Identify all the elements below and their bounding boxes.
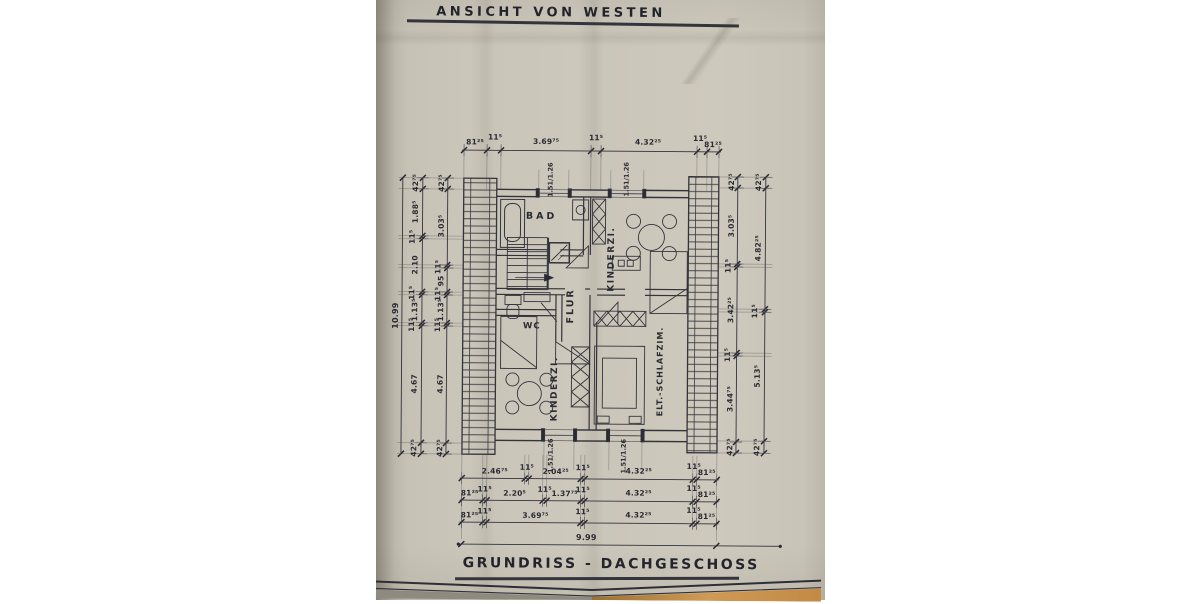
room-label-eltern-schlafzimmer: ELT.-SCHLAFZIM. xyxy=(656,327,665,417)
dim-label: 3.44⁷⁵ xyxy=(726,386,734,412)
overall-height-dim: 10.99 xyxy=(392,302,400,328)
wardrobe-top xyxy=(592,199,605,244)
dim-label: 3.69⁷⁵ xyxy=(533,138,559,146)
dim-label: 81²⁵ xyxy=(466,138,484,146)
dim-label: 42⁷⁵ xyxy=(410,439,418,457)
dim-label: 81²⁵ xyxy=(461,489,479,497)
dim-label: 4.67 xyxy=(437,374,445,393)
dim-label: 3.03⁵ xyxy=(438,215,446,238)
dim-label: 42⁷⁵ xyxy=(728,173,736,191)
left-gable-wall xyxy=(462,178,497,454)
view-title-underline xyxy=(407,19,739,27)
window-dim: 1.51/1.26 xyxy=(623,162,630,196)
dim-label: 11⁵ xyxy=(724,259,732,273)
dim-label: 2.10 xyxy=(411,255,419,274)
room-label-kinderzimmer-top: KINDERZI. xyxy=(608,227,617,292)
dim-label: 42⁷⁵ xyxy=(753,438,761,456)
dim-label: 2.46⁷⁵ xyxy=(482,467,508,475)
dim-label: 11⁵ xyxy=(589,134,603,142)
paper-shadow-bottom xyxy=(376,590,592,601)
dim-label: 81²⁵ xyxy=(461,511,479,519)
dim-label: 42⁷⁵ xyxy=(755,173,763,191)
bed-top xyxy=(650,251,687,313)
table-wood xyxy=(592,587,821,602)
dim-label: 3.69⁷⁵ xyxy=(522,512,548,520)
dim-label: 3.03⁵ xyxy=(728,215,736,238)
dim-label: 42⁷⁵ xyxy=(412,174,420,192)
plan-title-underline xyxy=(455,577,739,580)
dim-label: 2.20⁵ xyxy=(503,490,526,498)
dim-label: 42⁷⁵ xyxy=(436,439,444,457)
dim-label: 1.88⁵ xyxy=(412,200,420,223)
table-chairs-top xyxy=(626,214,676,260)
dim-label: 11⁵ xyxy=(477,485,491,493)
dim-label: 11⁵ xyxy=(434,260,442,274)
dim-label: 11⁵ xyxy=(434,318,442,332)
wardrobe-center xyxy=(571,347,589,407)
dim-label: 81²⁵ xyxy=(698,469,716,477)
dim-label: 4.67 xyxy=(411,374,419,393)
dim-label: 11⁵ xyxy=(751,304,759,318)
chimney-shaft xyxy=(549,243,569,263)
window-dim: 1.51/1.26 xyxy=(547,162,554,196)
dim-label: 42⁷⁵ xyxy=(726,438,734,456)
wardrobe-elt xyxy=(594,311,646,326)
stairs xyxy=(507,237,554,289)
plan-title: GRUNDRISS - DACHGESCHOSS xyxy=(463,556,760,572)
dim-label: 4.32²⁵ xyxy=(625,512,651,520)
room-label-flur: FLUR xyxy=(566,288,576,323)
dimension-tick-crosses xyxy=(414,144,772,530)
right-gable-wall xyxy=(687,177,719,453)
wc-fixtures xyxy=(505,292,550,318)
dim-label: 81²⁵ xyxy=(698,513,716,521)
view-title: ANSICHT VON WESTEN xyxy=(436,5,666,20)
dim-label: 4.32²⁵ xyxy=(626,468,652,476)
dim-label: 3.42²⁵ xyxy=(727,297,735,323)
room-label-bad: BAD xyxy=(526,212,558,222)
dim-label: 11⁵ xyxy=(520,464,534,472)
room-label-kinderzimmer-bottom: KINDERZI. xyxy=(551,356,560,421)
table-chairs-bottom xyxy=(506,373,553,414)
overall-width-dim: 9.99 xyxy=(576,534,597,542)
dim-label: 11⁵ xyxy=(488,134,502,142)
dim-label: 5.13⁵ xyxy=(754,365,762,388)
dim-label: 11⁵ xyxy=(477,507,491,515)
bad-sink xyxy=(573,200,589,220)
extension-lines xyxy=(396,155,773,542)
dim-label: 11⁵ xyxy=(576,464,590,472)
dim-label: 11⁵ xyxy=(537,486,551,494)
top-wall xyxy=(497,188,689,198)
floor-plan-linework xyxy=(0,0,1200,604)
dim-label: 11⁵ xyxy=(575,508,589,516)
dim-label: 4.82²⁵ xyxy=(755,235,763,261)
dim-label: 4.32²⁵ xyxy=(625,490,651,498)
dim-label: 81²⁵ xyxy=(704,141,722,149)
sheet-border xyxy=(376,578,821,598)
drawing-scene: ANSICHT VON WESTEN GRUNDRISS - DACHGESCH… xyxy=(0,0,1200,604)
dim-label: 11⁵ xyxy=(408,318,416,332)
dim-label: 11⁵ xyxy=(409,230,417,244)
bathtub xyxy=(500,199,524,247)
double-bed xyxy=(594,346,645,424)
dim-label: 2.04²⁵ xyxy=(543,468,569,476)
bottom-wall xyxy=(495,428,687,442)
room-label-wc: WC xyxy=(523,322,541,331)
dim-label: 1.37⁷⁵ xyxy=(551,490,577,498)
dim-label: 42⁷⁵ xyxy=(438,174,446,192)
dim-label: 4.32²⁵ xyxy=(635,139,661,147)
dim-label: 81²⁵ xyxy=(698,491,716,499)
dim-label: 11⁵ xyxy=(724,348,732,362)
dim-label: 95 xyxy=(437,276,445,287)
dim-label: 11⁵ xyxy=(575,486,589,494)
